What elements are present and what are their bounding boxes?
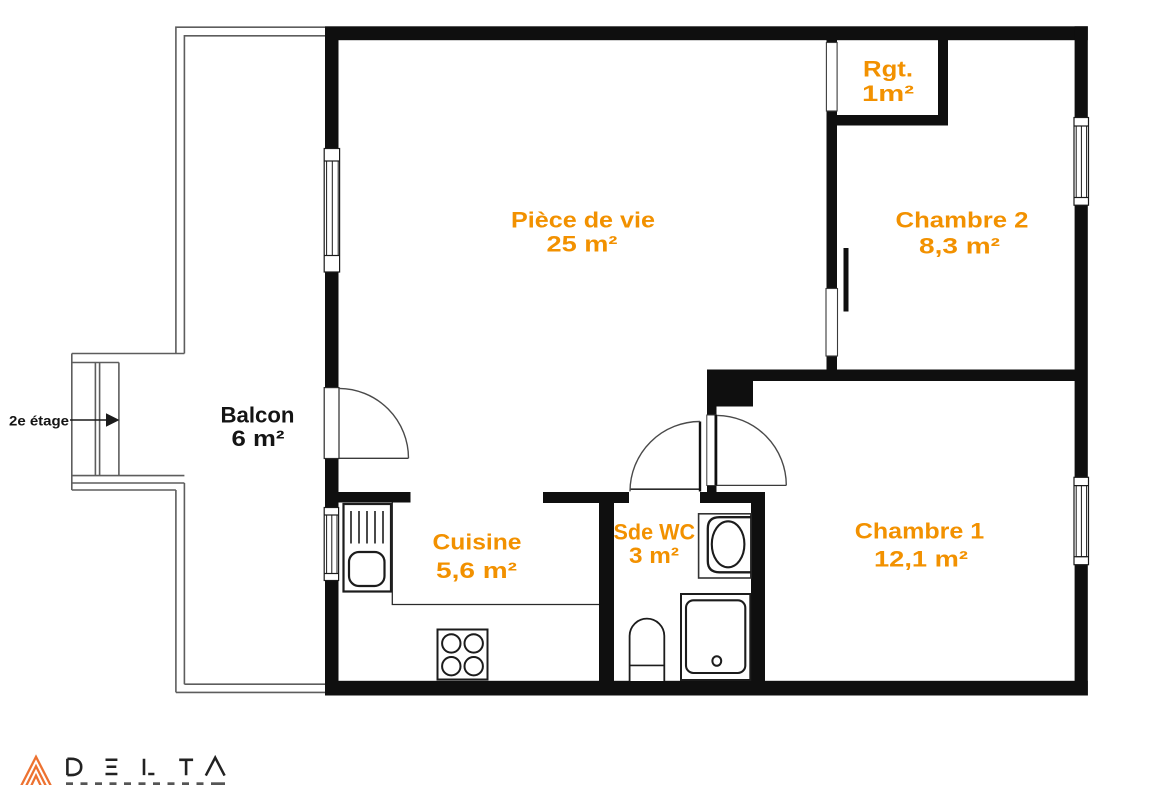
svg-text:Chambre 2: Chambre 2 bbox=[896, 208, 1029, 233]
svg-text:Sde WC: Sde WC bbox=[614, 520, 696, 545]
svg-text:Rgt.: Rgt. bbox=[863, 57, 913, 82]
svg-text:6 m²: 6 m² bbox=[232, 426, 285, 451]
svg-text:12,1 m²: 12,1 m² bbox=[874, 547, 968, 572]
svg-text:1m²: 1m² bbox=[862, 81, 914, 106]
svg-text:3 m²: 3 m² bbox=[629, 543, 679, 568]
svg-text:5,6 m²: 5,6 m² bbox=[436, 558, 517, 583]
svg-text:Balcon: Balcon bbox=[221, 403, 295, 428]
svg-text:2e étage: 2e étage bbox=[9, 414, 70, 429]
svg-text:Cuisine: Cuisine bbox=[433, 530, 522, 555]
svg-text:Chambre 1: Chambre 1 bbox=[855, 519, 985, 544]
svg-text:25 m²: 25 m² bbox=[547, 232, 618, 257]
svg-text:Pièce de vie: Pièce de vie bbox=[511, 208, 655, 233]
svg-text:8,3 m²: 8,3 m² bbox=[919, 234, 1000, 259]
